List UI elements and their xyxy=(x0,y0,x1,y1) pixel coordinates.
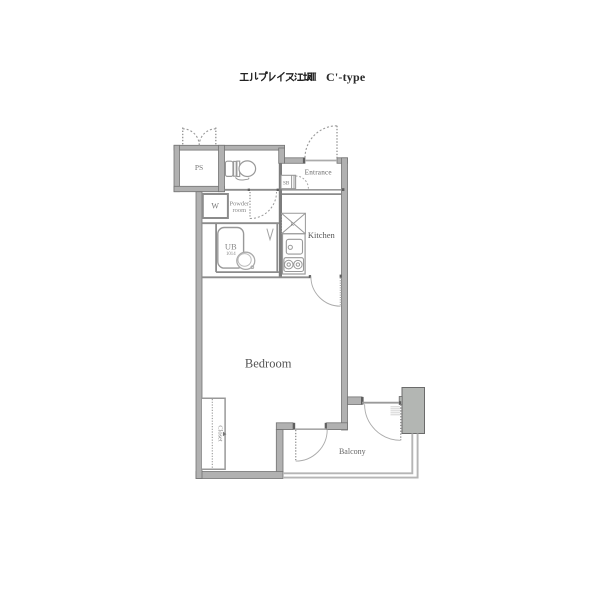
svg-text:Balcony: Balcony xyxy=(339,447,366,456)
svg-text:1014: 1014 xyxy=(226,252,236,257)
svg-text:SB: SB xyxy=(283,180,290,186)
svg-text:Entrance: Entrance xyxy=(305,169,332,177)
svg-text:PS: PS xyxy=(195,163,203,172)
svg-text:R: R xyxy=(290,222,294,228)
svg-text:Kitchen: Kitchen xyxy=(308,230,336,240)
svg-text:W: W xyxy=(211,201,219,210)
svg-text:Bedroom: Bedroom xyxy=(245,356,292,370)
svg-text:Closet: Closet xyxy=(217,425,224,442)
svg-text:UB: UB xyxy=(225,242,237,252)
svg-text:C'-type: C'-type xyxy=(326,70,366,84)
svg-text:room: room xyxy=(233,207,247,214)
